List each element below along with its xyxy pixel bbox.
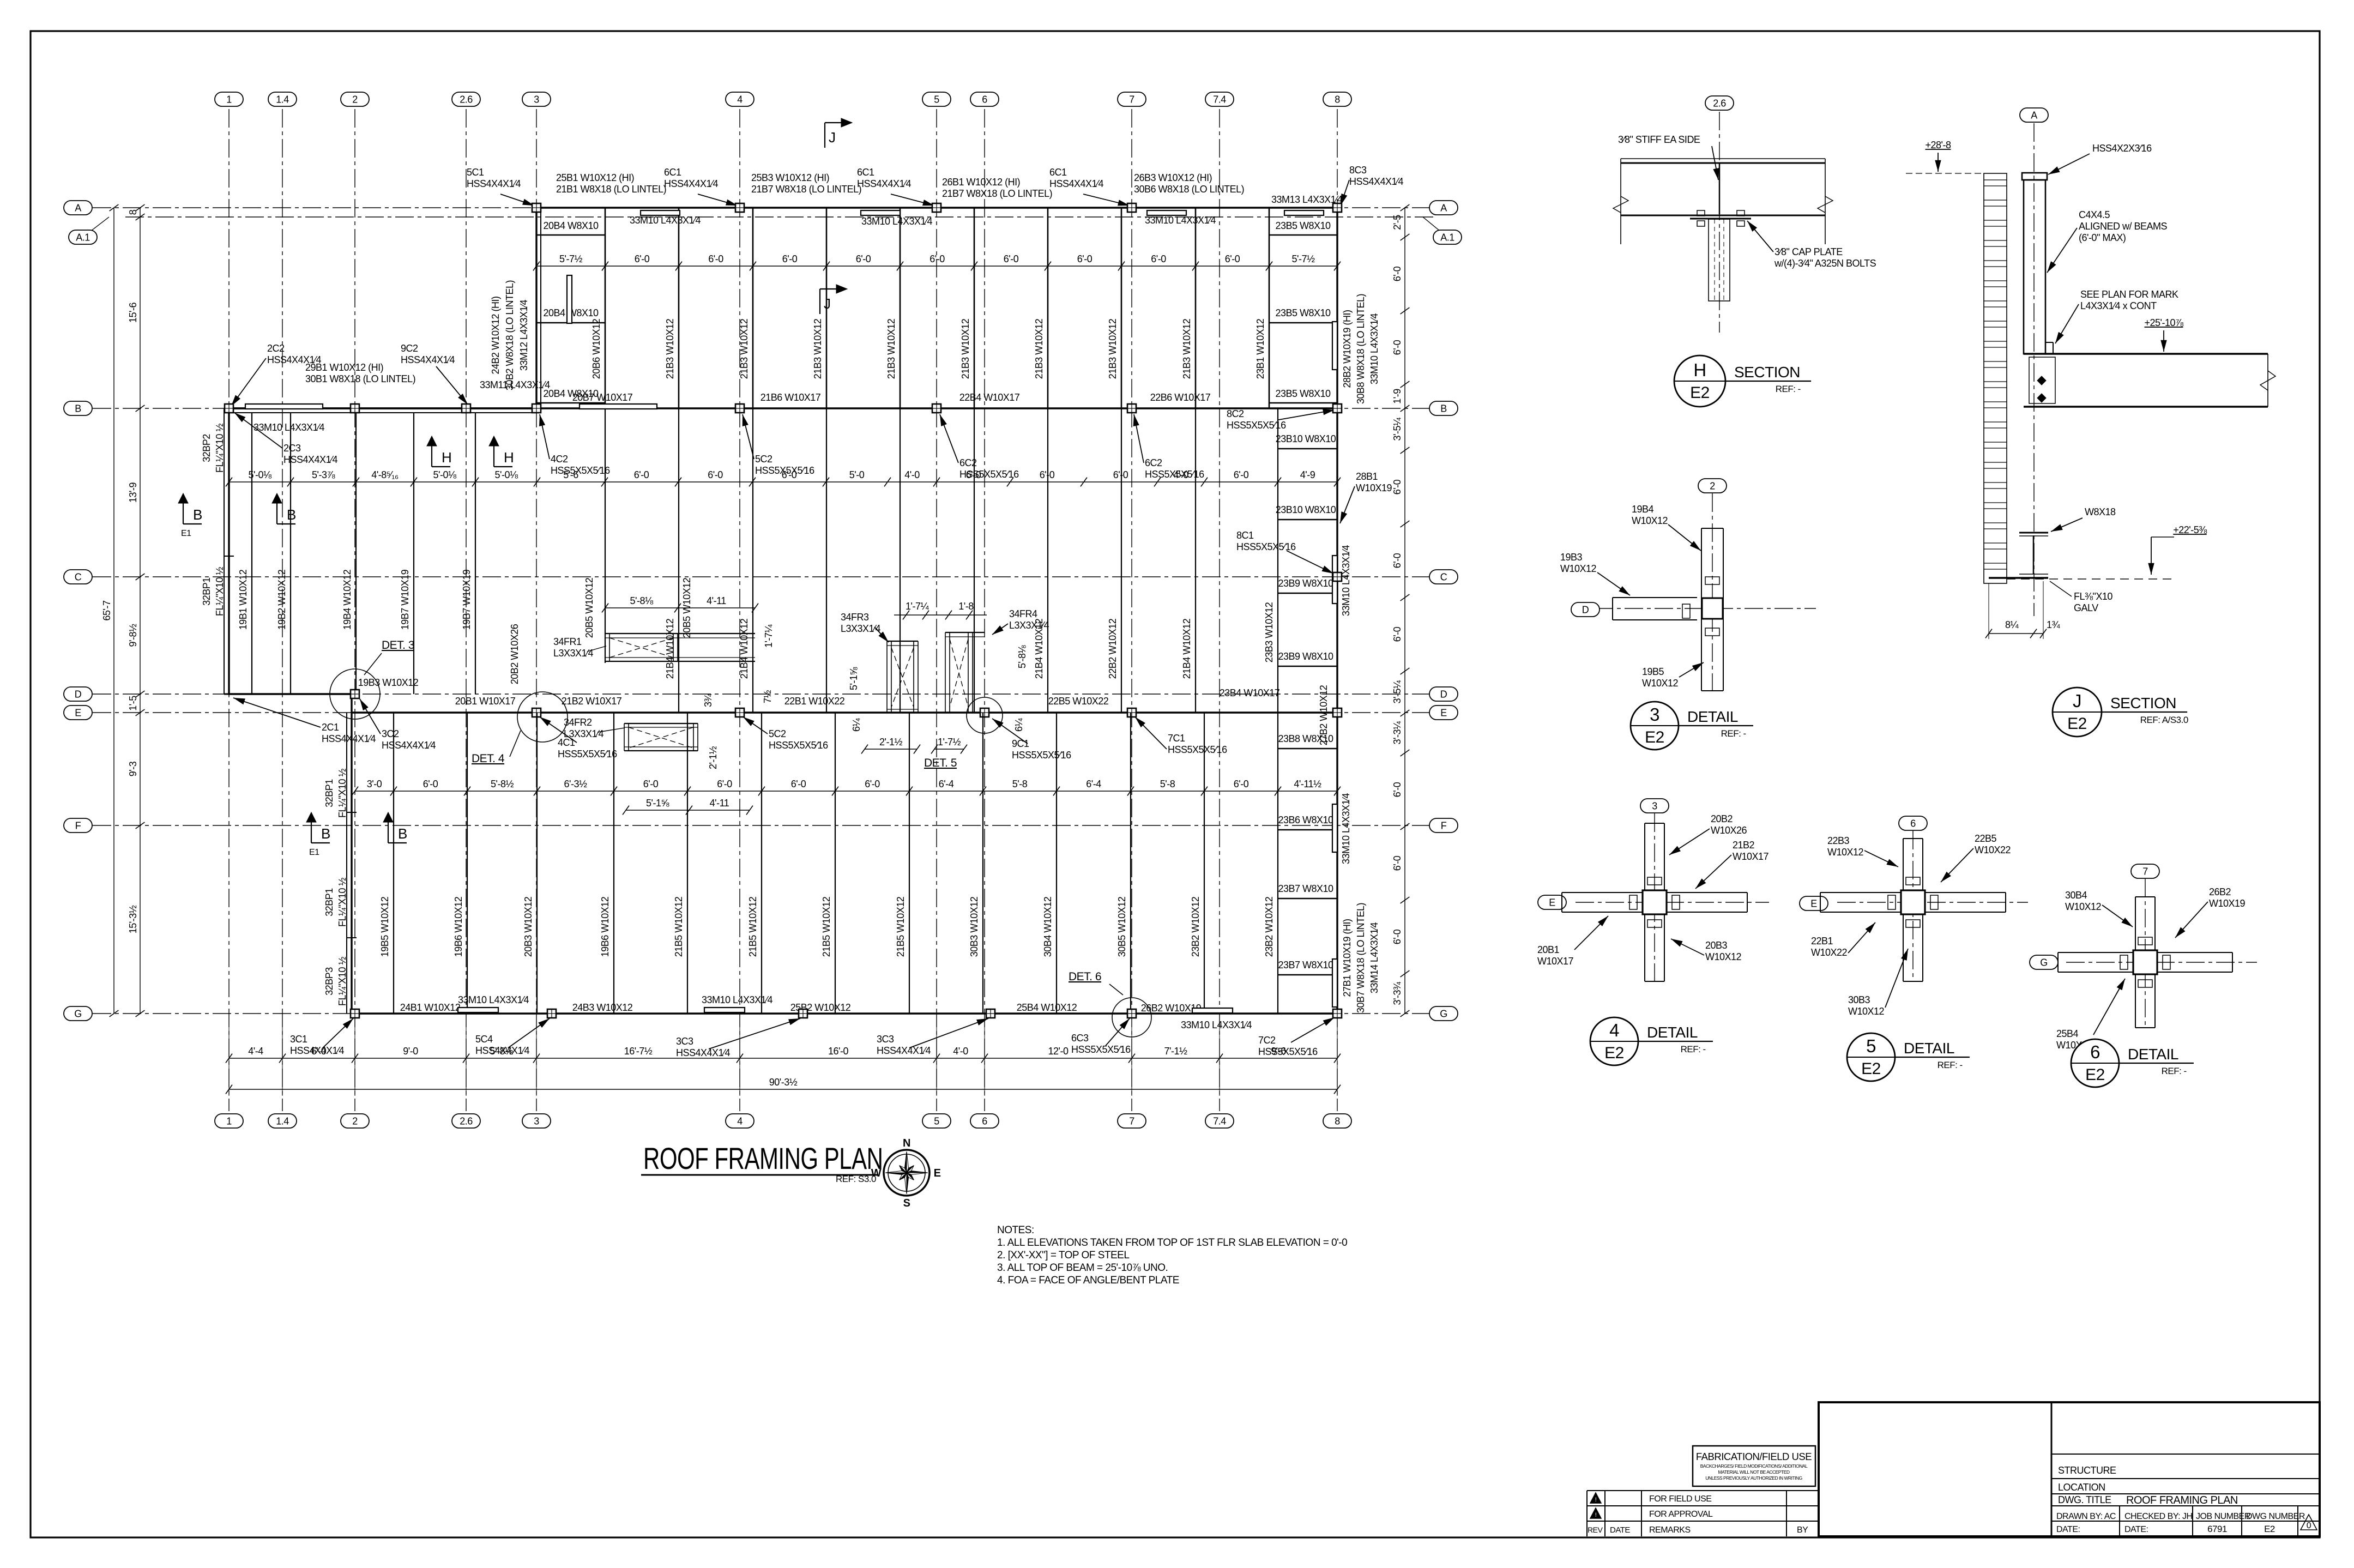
svg-text:2C3: 2C3 (283, 443, 301, 454)
svg-text:6'-0: 6'-0 (1004, 254, 1019, 264)
svg-text:W10X12: W10X12 (1632, 515, 1668, 526)
svg-text:A: A (1440, 202, 1447, 213)
svg-text:23B6 W8X10: 23B6 W8X10 (1278, 815, 1333, 825)
svg-text:C: C (1440, 571, 1447, 582)
svg-text:33M12 L4X3X1⁄4: 33M12 L4X3X1⁄4 (518, 299, 529, 371)
svg-text:33M13 L4X3X1⁄4: 33M13 L4X3X1⁄4 (1271, 194, 1343, 205)
svg-text:W10X17: W10X17 (1733, 851, 1769, 862)
svg-text:HSS4X4X1⁄4: HSS4X4X1⁄4 (676, 1047, 731, 1058)
svg-text:32BP1: 32BP1 (324, 888, 335, 916)
svg-text:23B4 W10X17: 23B4 W10X17 (1220, 687, 1280, 698)
svg-text:3: 3 (1650, 704, 1659, 725)
svg-text:4'-11: 4'-11 (707, 595, 726, 606)
svg-text:24B1 W10X12: 24B1 W10X12 (400, 1002, 461, 1013)
svg-text:E2: E2 (1645, 728, 1664, 746)
svg-text:3C3: 3C3 (877, 1034, 894, 1045)
svg-text:5'-7½: 5'-7½ (559, 254, 582, 264)
svg-text:3⁄8" STIFF EA SIDE: 3⁄8" STIFF EA SIDE (1618, 134, 1700, 145)
svg-text:21B3 W10X12: 21B3 W10X12 (960, 318, 971, 379)
svg-text:E: E (1440, 707, 1447, 718)
svg-text:22B1 W10X22: 22B1 W10X22 (784, 696, 845, 707)
svg-text:1: 1 (226, 94, 232, 105)
svg-text:25B1 W10X12 (HI): 25B1 W10X12 (HI) (556, 172, 634, 183)
svg-text:UNLESS PREVIOUSLY AUTHORIZED I: UNLESS PREVIOUSLY AUTHORIZED IN WRITING (1705, 1475, 1802, 1481)
svg-text:B: B (193, 506, 202, 523)
svg-text:25B3 W10X12 (HI): 25B3 W10X12 (HI) (751, 172, 829, 183)
svg-text:L3X3X1⁄4: L3X3X1⁄4 (1009, 620, 1049, 631)
svg-text:4'-4: 4'-4 (248, 1046, 263, 1057)
svg-text:5: 5 (934, 94, 939, 105)
svg-text:6'-0: 6'-0 (1151, 254, 1166, 264)
svg-text:33M10 L4X3X1⁄4: 33M10 L4X3X1⁄4 (861, 216, 933, 227)
svg-text:1'-7¼: 1'-7¼ (906, 601, 929, 612)
svg-text:REF: A/S3.0: REF: A/S3.0 (2140, 715, 2188, 725)
svg-text:5'-0: 5'-0 (849, 469, 865, 480)
svg-text:2'-1½: 2'-1½ (708, 746, 719, 769)
svg-text:E2: E2 (2085, 1066, 2105, 1084)
svg-text:3'-3¼: 3'-3¼ (1392, 721, 1403, 744)
svg-text:9C1: 9C1 (1012, 738, 1029, 749)
svg-text:1¾: 1¾ (2047, 619, 2061, 630)
svg-text:4'-9: 4'-9 (1300, 469, 1315, 480)
svg-text:W10X26: W10X26 (1711, 825, 1747, 836)
svg-text:6'-0: 6'-0 (708, 254, 723, 264)
svg-text:3'-0: 3'-0 (367, 779, 382, 789)
svg-text:26B1 W10X12 (HI): 26B1 W10X12 (HI) (942, 177, 1020, 188)
svg-text:B: B (1440, 403, 1447, 414)
svg-text:25B4 W10X12: 25B4 W10X12 (1017, 1002, 1077, 1013)
svg-text:REV: REV (1588, 1525, 1603, 1534)
svg-text:5C4: 5C4 (475, 1034, 493, 1045)
svg-text:MATERIAL WILL NOT BE ACCEPTED: MATERIAL WILL NOT BE ACCEPTED (1718, 1469, 1790, 1475)
svg-text:5C2: 5C2 (755, 454, 772, 465)
svg-text:6'-0: 6'-0 (643, 779, 659, 789)
svg-text:4. FOA = FACE OF ANGLE/BENT PL: 4. FOA = FACE OF ANGLE/BENT PLATE (997, 1275, 1179, 1286)
svg-text:w/(4)-3⁄4" A325N BOLTS: w/(4)-3⁄4" A325N BOLTS (1774, 258, 1876, 269)
svg-text:21B5 W10X12: 21B5 W10X12 (895, 896, 906, 957)
svg-text:1'-8: 1'-8 (958, 601, 974, 612)
svg-text:6C2: 6C2 (1145, 457, 1162, 468)
svg-text:3: 3 (1652, 800, 1657, 811)
svg-text:2'-1½: 2'-1½ (879, 737, 902, 747)
svg-text:5'-1⅝: 5'-1⅝ (848, 667, 859, 690)
svg-text:6'-0: 6'-0 (1113, 469, 1128, 480)
svg-text:30B8 W8X18 (LO LINTEL): 30B8 W8X18 (LO LINTEL) (1355, 294, 1366, 404)
svg-text:E2: E2 (1861, 1060, 1881, 1078)
svg-text:A: A (75, 202, 81, 213)
svg-text:4C2: 4C2 (551, 454, 568, 465)
svg-text:9'-3: 9'-3 (128, 761, 138, 776)
svg-text:6'-3½: 6'-3½ (564, 779, 587, 789)
svg-text:1'-9: 1'-9 (1392, 389, 1403, 404)
svg-text:6: 6 (1910, 818, 1916, 829)
svg-text:8: 8 (1335, 1115, 1340, 1126)
svg-text:HSS5X5X5⁄16: HSS5X5X5⁄16 (551, 465, 610, 476)
svg-text:C: C (75, 571, 82, 582)
svg-text:23B5 W8X10: 23B5 W8X10 (1275, 220, 1331, 231)
svg-text:19B4 W10X12: 19B4 W10X12 (342, 569, 353, 630)
svg-text:A.1: A.1 (76, 232, 90, 243)
svg-text:HSS5X5X5⁄16: HSS5X5X5⁄16 (1071, 1044, 1131, 1055)
svg-text:W10X12: W10X12 (1642, 678, 1679, 689)
svg-text:D: D (75, 689, 82, 699)
svg-text:33M10 L4X3X1⁄4: 33M10 L4X3X1⁄4 (1145, 215, 1216, 226)
svg-text:G: G (2040, 957, 2048, 968)
svg-text:22B5 W10X22: 22B5 W10X22 (1048, 696, 1109, 707)
svg-text:21B3 W10X12: 21B3 W10X12 (886, 318, 897, 379)
svg-text:3C3: 3C3 (676, 1036, 693, 1047)
svg-text:23B10 W8X10: 23B10 W8X10 (1276, 504, 1336, 515)
svg-text:HSS4X4X1⁄4: HSS4X4X1⁄4 (283, 454, 338, 465)
svg-text:DET. 4: DET. 4 (472, 752, 505, 765)
svg-text:4'-0: 4'-0 (904, 469, 920, 480)
svg-text:W10X17: W10X17 (1537, 956, 1574, 967)
svg-text:5: 5 (934, 1115, 939, 1126)
svg-text:HSS5X5X5⁄16: HSS5X5X5⁄16 (558, 749, 617, 759)
svg-text:E1: E1 (309, 848, 319, 857)
svg-text:REF: -: REF: - (2162, 1066, 2187, 1076)
svg-text:33M10 L4X3X1⁄4: 33M10 L4X3X1⁄4 (458, 994, 529, 1005)
svg-text:6'-0: 6'-0 (782, 469, 797, 480)
svg-text:21B3 W10X12: 21B3 W10X12 (665, 318, 675, 379)
svg-text:2: 2 (352, 1115, 358, 1126)
svg-text:H: H (442, 449, 451, 466)
svg-text:21B3 W10X12: 21B3 W10X12 (1107, 318, 1118, 379)
svg-text:2C2: 2C2 (267, 343, 285, 354)
svg-text:6'-0: 6'-0 (1077, 254, 1093, 264)
svg-text:REF: -: REF: - (1721, 728, 1746, 739)
svg-text:HSS4X4X1⁄4: HSS4X4X1⁄4 (467, 178, 521, 189)
svg-text:90'-3½: 90'-3½ (769, 1077, 798, 1088)
svg-text:19B1 W10X12: 19B1 W10X12 (238, 569, 249, 630)
svg-text:W10X19: W10X19 (2209, 898, 2246, 909)
svg-text:19B5: 19B5 (1642, 666, 1664, 677)
svg-text:5: 5 (1866, 1036, 1876, 1056)
svg-text:2'-5: 2'-5 (1392, 215, 1403, 230)
svg-text:HSS5X5X5⁄16: HSS5X5X5⁄16 (1227, 420, 1286, 431)
svg-text:20B5 W10X12: 20B5 W10X12 (584, 577, 595, 638)
svg-text:23B3 W10X12: 23B3 W10X12 (1264, 602, 1275, 662)
svg-text:DRAWN BY: AC: DRAWN BY: AC (2056, 1512, 2116, 1521)
svg-text:21B3 W10X12: 21B3 W10X12 (1181, 318, 1192, 379)
svg-text:1.4: 1.4 (276, 1115, 289, 1126)
svg-text:FL¼"X10 ½: FL¼"X10 ½ (337, 878, 348, 927)
svg-text:3C1: 3C1 (290, 1034, 307, 1045)
svg-text:8¼: 8¼ (2005, 619, 2019, 630)
svg-text:5'-0⅛: 5'-0⅛ (433, 469, 457, 480)
svg-text:19B3: 19B3 (1560, 552, 1583, 563)
svg-text:REF: -: REF: - (1681, 1044, 1706, 1054)
svg-text:26B2: 26B2 (2209, 886, 2231, 897)
svg-text:3. ALL TOP OF BEAM = 25'-10⅞ U: 3. ALL TOP OF BEAM = 25'-10⅞ UNO. (997, 1262, 1168, 1274)
svg-text:7: 7 (1129, 94, 1134, 105)
svg-text:5'-1⅝: 5'-1⅝ (646, 798, 669, 809)
svg-text:6'-0: 6'-0 (717, 779, 732, 789)
svg-text:3'-5¼: 3'-5¼ (1392, 680, 1403, 703)
svg-text:4C1: 4C1 (558, 737, 575, 748)
svg-text:REMARKS: REMARKS (1649, 1525, 1691, 1535)
svg-text:1'-5: 1'-5 (128, 696, 138, 711)
svg-text:34FR1: 34FR1 (553, 636, 582, 647)
svg-text:W10X12: W10X12 (2065, 901, 2102, 912)
svg-text:2: 2 (1710, 480, 1715, 491)
svg-text:21B5 W10X12: 21B5 W10X12 (821, 896, 832, 957)
svg-text:3C2: 3C2 (382, 728, 399, 739)
svg-text:8C2: 8C2 (1227, 408, 1244, 419)
svg-text:H: H (1693, 360, 1706, 380)
svg-text:HSS4X4X1⁄4: HSS4X4X1⁄4 (267, 354, 322, 365)
svg-text:9C2: 9C2 (401, 343, 418, 354)
svg-text:12'-0: 12'-0 (1048, 1046, 1069, 1057)
svg-text:24B2 W10X12 (HI): 24B2 W10X12 (HI) (490, 296, 501, 374)
svg-text:L4X3X1⁄4 x CONT: L4X3X1⁄4 x CONT (2080, 300, 2157, 311)
svg-text:JOB NUMBER: JOB NUMBER (2196, 1512, 2250, 1521)
svg-text:5'-8: 5'-8 (1160, 779, 1175, 789)
svg-text:6'-0: 6'-0 (966, 469, 981, 480)
svg-text:DETAIL: DETAIL (2128, 1046, 2178, 1063)
svg-text:7½: 7½ (762, 690, 773, 704)
svg-text:HSS4X4X1⁄4: HSS4X4X1⁄4 (664, 178, 719, 189)
svg-text:6'-0: 6'-0 (865, 779, 880, 789)
svg-text:21B4 W10X12: 21B4 W10X12 (665, 618, 675, 679)
svg-text:ROOF FRAMING PLAN: ROOF FRAMING PLAN (643, 1142, 883, 1175)
svg-text:5'-7½: 5'-7½ (1292, 254, 1315, 264)
svg-text:21B5 W10X12: 21B5 W10X12 (747, 896, 758, 957)
svg-text:23B2 W10X12: 23B2 W10X12 (1264, 896, 1275, 957)
svg-text:6C1: 6C1 (664, 167, 681, 178)
svg-text:HSS4X4X1⁄4: HSS4X4X1⁄4 (322, 733, 376, 744)
svg-text:HSS4X4X1⁄4: HSS4X4X1⁄4 (1049, 178, 1104, 189)
svg-text:A: A (2031, 110, 2037, 120)
svg-text:(6'-0" MAX): (6'-0" MAX) (2079, 232, 2126, 243)
svg-text:1: 1 (226, 1115, 232, 1126)
svg-text:19B5 W10X12: 19B5 W10X12 (379, 896, 390, 957)
svg-text:23B7 W8X10: 23B7 W8X10 (1278, 960, 1333, 970)
svg-text:6'-0: 6'-0 (1392, 929, 1403, 944)
svg-text:28B1: 28B1 (1356, 471, 1378, 482)
svg-text:19B4: 19B4 (1632, 504, 1654, 515)
svg-text:21B4 W10X12: 21B4 W10X12 (739, 618, 750, 679)
svg-text:33M10 L4X3X1⁄4: 33M10 L4X3X1⁄4 (1341, 793, 1351, 864)
svg-text:32BP3: 32BP3 (324, 967, 335, 996)
svg-text:N: N (903, 1137, 910, 1149)
svg-text:20B3 W10X12: 20B3 W10X12 (523, 896, 534, 957)
svg-text:23B1 W10X12: 23B1 W10X12 (1255, 318, 1266, 379)
svg-text:6C1: 6C1 (1049, 167, 1067, 178)
svg-text:B: B (287, 506, 296, 523)
svg-text:21B2 W10X17: 21B2 W10X17 (562, 696, 622, 707)
svg-text:J: J (2073, 691, 2081, 711)
svg-text:F: F (75, 820, 81, 831)
svg-text:E2: E2 (2264, 1524, 2275, 1534)
svg-text:6'-0: 6'-0 (1392, 340, 1403, 355)
svg-text:23B2 W10X12: 23B2 W10X12 (1190, 896, 1201, 957)
svg-text:L3X3X1⁄4: L3X3X1⁄4 (841, 623, 881, 634)
svg-text:1'-7½: 1'-7½ (938, 737, 961, 747)
svg-text:7'-1½: 7'-1½ (1164, 1046, 1187, 1057)
svg-text:HSS4X2X3⁄16: HSS4X2X3⁄16 (2092, 143, 2152, 154)
svg-text:6'-0: 6'-0 (708, 469, 723, 480)
svg-text:DET. 5: DET. 5 (924, 757, 957, 769)
svg-text:4'-11: 4'-11 (710, 798, 729, 809)
svg-text:REF: S3.0: REF: S3.0 (836, 1174, 876, 1184)
svg-text:2C1: 2C1 (322, 722, 339, 733)
svg-text:F: F (1441, 820, 1447, 831)
svg-text:30B7 W8X18 (LO LINTEL): 30B7 W8X18 (LO LINTEL) (1355, 903, 1366, 1013)
svg-text:33M10 L4X3X1⁄4: 33M10 L4X3X1⁄4 (1369, 313, 1380, 384)
svg-text:E2: E2 (1604, 1044, 1624, 1062)
svg-text:SECTION: SECTION (1734, 364, 1800, 381)
svg-text:E1: E1 (181, 529, 191, 538)
svg-text:DETAIL: DETAIL (1647, 1024, 1698, 1041)
svg-text:+28'-8: +28'-8 (1926, 140, 1951, 150)
svg-text:6'-0: 6'-0 (782, 254, 798, 264)
svg-text:23B5 W8X10: 23B5 W8X10 (1275, 307, 1331, 318)
svg-text:+22'-5⅜: +22'-5⅜ (2173, 524, 2207, 535)
svg-text:SECTION: SECTION (2110, 695, 2176, 711)
svg-text:6'-4: 6'-4 (1086, 779, 1101, 789)
svg-text:5'-8½: 5'-8½ (490, 1046, 513, 1057)
svg-text:6'-0: 6'-0 (1392, 626, 1403, 642)
svg-text:HSS4X4X1⁄4: HSS4X4X1⁄4 (857, 178, 912, 189)
svg-text:6'-0: 6'-0 (1225, 254, 1240, 264)
svg-text:NOTES:: NOTES: (997, 1225, 1034, 1236)
svg-text:LOCATION: LOCATION (2058, 1482, 2105, 1493)
svg-text:4: 4 (737, 1115, 743, 1126)
svg-text:6'-0: 6'-0 (1040, 469, 1055, 480)
svg-text:DETAIL: DETAIL (1687, 708, 1738, 725)
svg-text:DWG. TITLE: DWG. TITLE (2058, 1494, 2111, 1505)
svg-text:15'-3½: 15'-3½ (128, 905, 138, 933)
svg-text:SEE PLAN FOR MARK: SEE PLAN FOR MARK (2080, 289, 2178, 300)
svg-text:DETAIL: DETAIL (1904, 1040, 1954, 1057)
svg-text:33M10 L4X3X1⁄4: 33M10 L4X3X1⁄4 (253, 422, 325, 433)
svg-text:HSS5X5X5⁄16: HSS5X5X5⁄16 (1168, 744, 1227, 755)
svg-text:3'-5¼: 3'-5¼ (1392, 417, 1403, 441)
svg-text:6'-0: 6'-0 (634, 469, 649, 480)
svg-text:HSS4X4X1⁄4: HSS4X4X1⁄4 (401, 354, 455, 365)
svg-text:1'-7¼: 1'-7¼ (763, 624, 774, 648)
svg-text:FL¼"X10 ½: FL¼"X10 ½ (337, 957, 348, 1006)
svg-text:J: J (824, 295, 831, 312)
svg-text:6C1: 6C1 (857, 167, 874, 178)
svg-text:20B1: 20B1 (1537, 944, 1560, 955)
svg-text:B: B (321, 825, 330, 842)
svg-text:8: 8 (1335, 94, 1340, 105)
svg-text:20B3: 20B3 (1705, 940, 1728, 951)
svg-text:20B2 W10X26: 20B2 W10X26 (509, 624, 520, 684)
svg-text:20B6 W10X12: 20B6 W10X12 (591, 318, 602, 379)
svg-text:21B3 W10X12: 21B3 W10X12 (812, 318, 823, 379)
svg-text:22B2 W10X12: 22B2 W10X12 (1107, 618, 1118, 679)
svg-text:W10X22: W10X22 (1975, 845, 2011, 855)
svg-text:21B4 W10X12: 21B4 W10X12 (1181, 618, 1192, 679)
svg-text:32BP1: 32BP1 (201, 577, 212, 606)
svg-text:30B3 W10X12: 30B3 W10X12 (969, 896, 980, 957)
svg-text:7: 7 (1129, 1115, 1134, 1126)
svg-text:3: 3 (534, 1115, 539, 1126)
svg-text:15'-6: 15'-6 (128, 303, 138, 323)
svg-text:6'-0: 6'-0 (635, 254, 650, 264)
svg-text:ROOF FRAMING PLAN: ROOF FRAMING PLAN (2126, 1494, 2238, 1506)
svg-text:!: ! (1595, 1512, 1597, 1518)
svg-text:4: 4 (1609, 1020, 1619, 1040)
svg-text:!: ! (1595, 1497, 1597, 1503)
svg-text:6: 6 (982, 94, 987, 105)
svg-text:5'-0⅛: 5'-0⅛ (495, 469, 518, 480)
svg-text:30B4 W10X12: 30B4 W10X12 (1042, 896, 1053, 957)
svg-text:6'-0: 6'-0 (856, 254, 871, 264)
svg-text:26B3 W10X12 (HI): 26B3 W10X12 (HI) (1134, 172, 1212, 183)
svg-text:23B8 W8X10: 23B8 W8X10 (1278, 733, 1333, 744)
svg-text:DWG NUMBER: DWG NUMBER (2246, 1512, 2305, 1521)
svg-text:E2: E2 (1690, 384, 1710, 402)
svg-text:32BP2: 32BP2 (201, 434, 212, 462)
svg-text:HSS5X5X5⁄16: HSS5X5X5⁄16 (1012, 750, 1071, 761)
svg-text:4: 4 (737, 94, 743, 105)
svg-text:34FR3: 34FR3 (841, 612, 869, 623)
svg-text:FABRICATION/FIELD USE: FABRICATION/FIELD USE (1696, 1451, 1812, 1462)
svg-text:HSS4X4X1⁄4: HSS4X4X1⁄4 (382, 740, 436, 751)
svg-text:2. [XX'-XX"] = TOP OF STEEL: 2. [XX'-XX"] = TOP OF STEEL (997, 1250, 1129, 1261)
svg-text:CHECKED BY: JH: CHECKED BY: JH (2124, 1512, 2193, 1521)
svg-text:6791: 6791 (2207, 1524, 2227, 1534)
svg-text:B: B (398, 825, 407, 842)
svg-text:DET. 3: DET. 3 (382, 639, 414, 652)
svg-text:6'-0: 6'-0 (1392, 782, 1403, 797)
svg-text:9'-6: 9'-6 (1271, 1046, 1286, 1057)
svg-text:23B7 W8X10: 23B7 W8X10 (1278, 883, 1333, 894)
svg-text:FOR APPROVAL: FOR APPROVAL (1649, 1510, 1713, 1519)
svg-text:20B4 W8X10: 20B4 W8X10 (543, 220, 599, 231)
svg-text:H: H (504, 449, 514, 466)
svg-text:E2: E2 (2067, 715, 2087, 733)
svg-text:5'-8⅛: 5'-8⅛ (630, 595, 654, 606)
svg-text:HSS4X4X1⁄4: HSS4X4X1⁄4 (1349, 176, 1404, 187)
svg-text:W: W (871, 1167, 882, 1179)
svg-text:21B3 W10X12: 21B3 W10X12 (739, 318, 750, 379)
svg-text:J: J (829, 129, 836, 146)
svg-text:6'-0: 6'-0 (1392, 553, 1403, 568)
svg-text:19B6 W10X12: 19B6 W10X12 (453, 896, 464, 957)
svg-text:22B3: 22B3 (1827, 835, 1850, 846)
svg-text:4'-0: 4'-0 (1173, 469, 1188, 480)
svg-text:21B5 W10X12: 21B5 W10X12 (673, 896, 684, 957)
svg-text:9'-0: 9'-0 (403, 1046, 418, 1057)
svg-text:30B4: 30B4 (2065, 890, 2087, 901)
svg-text:6: 6 (982, 1115, 987, 1126)
svg-text:4'-8⁵⁄₁₆: 4'-8⁵⁄₁₆ (371, 469, 398, 480)
svg-text:30B2 W8X18 (LO LINTEL): 30B2 W8X18 (LO LINTEL) (504, 280, 515, 390)
svg-text:6¼: 6¼ (1013, 718, 1024, 732)
svg-text:1.4: 1.4 (276, 94, 289, 105)
svg-text:6'-0: 6'-0 (311, 1046, 327, 1057)
svg-text:E: E (75, 707, 81, 718)
svg-text:4'-11½: 4'-11½ (1294, 779, 1321, 789)
svg-text:7.4: 7.4 (1213, 1115, 1226, 1126)
svg-text:34FR2: 34FR2 (564, 717, 592, 728)
svg-text:21B7 W8X18 (LO LINTEL): 21B7 W8X18 (LO LINTEL) (751, 184, 861, 195)
svg-text:HSS5X5X5⁄16: HSS5X5X5⁄16 (1258, 1046, 1318, 1057)
svg-text:FL¼"X10 ½: FL¼"X10 ½ (214, 567, 225, 616)
svg-text:5'-8⅛: 5'-8⅛ (1017, 645, 1028, 668)
svg-text:7.4: 7.4 (1213, 94, 1226, 105)
svg-text:W10X12: W10X12 (1560, 563, 1597, 574)
svg-text:W10X22: W10X22 (1811, 947, 1848, 958)
svg-text:33M10 L4X3X1⁄4: 33M10 L4X3X1⁄4 (702, 994, 773, 1005)
svg-text:E: E (934, 1167, 941, 1179)
svg-text:E: E (1810, 898, 1817, 909)
